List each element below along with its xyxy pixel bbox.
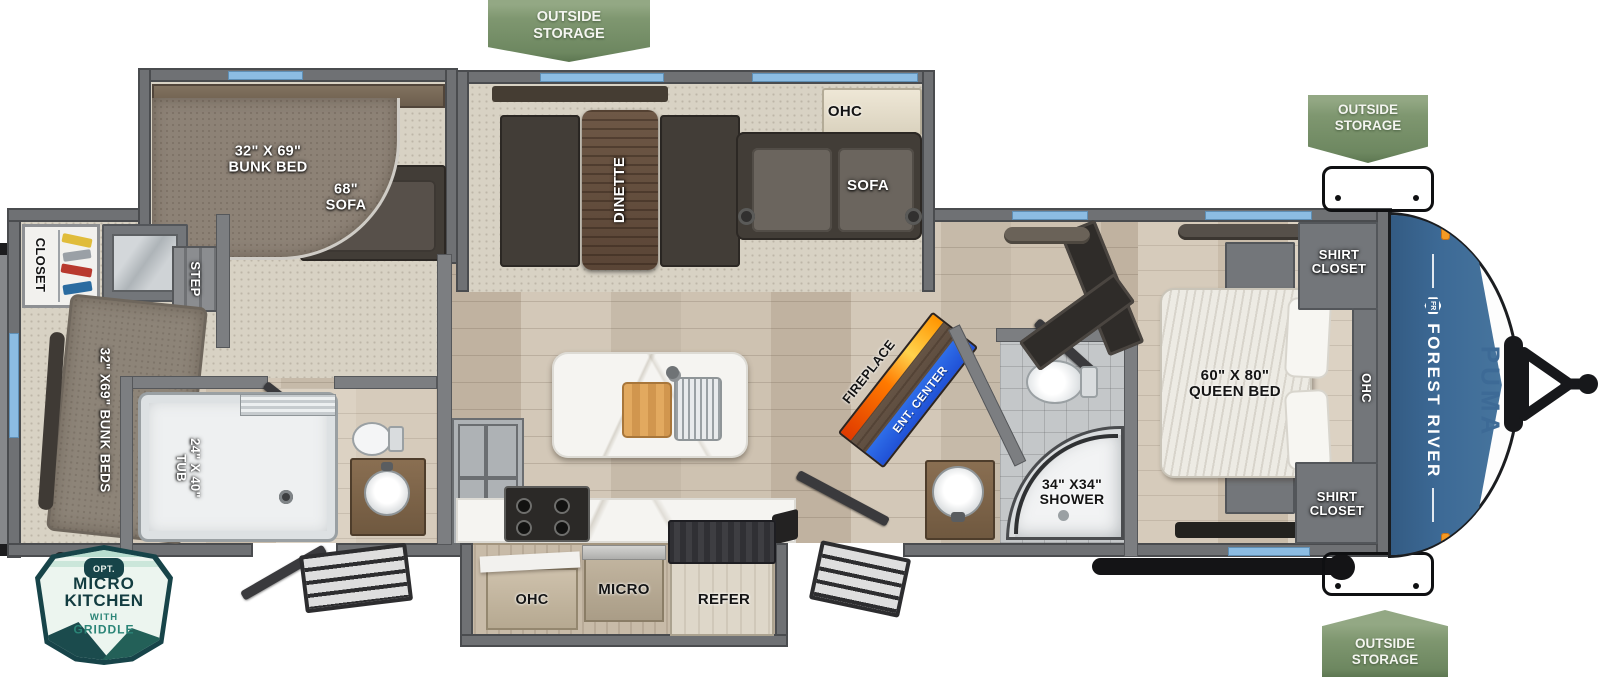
outside-storage-label: OUTSIDE STORAGE — [1335, 102, 1402, 134]
tub-drain — [279, 490, 293, 504]
entry-steps-1 — [299, 543, 413, 614]
dinette-window-1 — [540, 73, 664, 82]
forest-river-wordmark: FR FOREST RIVER — [1418, 248, 1448, 528]
bath1-toilet-bowl — [1026, 360, 1084, 404]
micro-kitchen-label-2: KITCHEN — [64, 592, 143, 610]
shirt-closet-bottom-label: SHIRT CLOSET — [1310, 490, 1365, 518]
step-label: STEP — [188, 261, 202, 296]
dinette-window-2 — [752, 73, 918, 82]
bath2-wall-top-a — [120, 376, 268, 389]
micro-kitchen-badge: OPT. MICRO KITCHEN WITH GRIDDLE — [35, 545, 173, 665]
micro-kitchen-sub-2: GRIDDLE — [74, 624, 135, 637]
outside-storage-badge-right: OUTSIDE STORAGE — [1308, 95, 1428, 163]
bolt-icon — [1413, 195, 1419, 201]
dinette-slide-wall-left — [456, 70, 469, 292]
wall-bunkroom-divider — [437, 254, 452, 545]
rear-window — [9, 333, 19, 438]
kitchen-ohc-label: OHC — [515, 593, 548, 609]
marker-light-icon — [1441, 533, 1450, 548]
sofa-ohc-label: OHC — [828, 104, 862, 120]
bath1-wall-right — [1124, 328, 1138, 557]
bedroom-dresser-top — [1225, 242, 1295, 294]
burner-icon — [516, 498, 532, 514]
shirt-closet-top-label: SHIRT CLOSET — [1312, 248, 1367, 276]
outside-storage-badge-top: OUTSIDE STORAGE — [488, 0, 650, 62]
sofa-cushion-left — [752, 148, 832, 232]
bedroom-window-top — [1205, 211, 1312, 220]
dinette-bench-right — [660, 115, 740, 267]
outside-storage-label: OUTSIDE STORAGE — [533, 9, 604, 43]
hall-bolster — [1004, 227, 1090, 244]
kitchen-slide-wall-right — [775, 543, 788, 647]
queen-bed-pillow-2 — [1284, 389, 1332, 471]
island-cutting-board — [622, 382, 672, 438]
frame-bracket-top — [1322, 166, 1434, 212]
dinette-valance — [492, 86, 668, 102]
bath2-toilet-tank — [388, 426, 404, 452]
awning-rail — [1092, 558, 1354, 575]
hitch-tongue — [1500, 328, 1600, 440]
wall-top-right — [930, 208, 1392, 222]
bath2-faucet — [381, 462, 393, 471]
pinstripe — [1432, 488, 1434, 522]
refer-label: REFER — [698, 592, 750, 608]
frame-bracket-bottom — [1322, 552, 1434, 596]
bath2-wall-left — [120, 376, 133, 556]
microwave-top — [582, 545, 666, 560]
bath1-faucet — [951, 512, 965, 522]
wall-top-left — [7, 208, 147, 222]
burner-icon — [554, 520, 570, 536]
micro-kitchen-badge-inner: OPT. MICRO KITCHEN WITH GRIDDLE — [40, 550, 168, 660]
bunk-slide-window — [228, 71, 303, 80]
bed-bench-bottom — [1175, 522, 1307, 538]
wall-closet-divider — [216, 214, 230, 348]
dinette-bench-left — [500, 115, 580, 267]
burner-icon — [516, 520, 532, 536]
sofa-cupholder-right — [905, 208, 922, 225]
kitchen-slide-wall-left — [460, 543, 473, 647]
bolt-icon — [1335, 195, 1341, 201]
wall-bottom-3 — [903, 543, 1392, 557]
entry-steps-2 — [809, 540, 911, 618]
forest-river-logo-icon: FR — [1425, 297, 1442, 314]
bolt-icon — [1413, 583, 1419, 589]
kitchen-stove — [504, 486, 590, 542]
hall-window — [1012, 211, 1088, 220]
island-sink — [674, 377, 722, 441]
refrigerator-top — [668, 520, 776, 564]
tub-label: 24" X 40" TUB — [174, 438, 202, 498]
rear-dresser-mirror — [112, 234, 178, 292]
queen-bed-label: 60" X 80" QUEEN BED — [1189, 368, 1281, 400]
shower-drain — [1058, 510, 1069, 521]
shower-label: 34" X34" SHOWER — [1040, 477, 1105, 507]
closet-label: CLOSET — [33, 238, 47, 293]
outside-storage-label: OUTSIDE STORAGE — [1352, 636, 1419, 668]
burner-icon — [554, 498, 570, 514]
opt-label: OPT. — [93, 564, 115, 574]
micro-label: MICRO — [598, 582, 650, 598]
bedroom-window-bottom — [1228, 547, 1310, 556]
forest-river-text: FOREST RIVER — [1423, 323, 1443, 479]
rear-bunks-label: 32" X69" BUNK BEDS — [97, 348, 112, 493]
marker-light-icon — [1441, 225, 1450, 240]
sofa-68-label: 68" SOFA — [326, 182, 367, 213]
outside-storage-badge-bottom: OUTSIDE STORAGE — [1322, 610, 1448, 677]
closet-rod — [58, 230, 60, 302]
dinette-label: DINETTE — [612, 157, 628, 223]
sofa-cupholder-left — [738, 208, 755, 225]
bath1-sink — [932, 466, 984, 518]
island-faucet — [666, 366, 679, 379]
rv-floorplan: 32" X 69" BUNK BED 68" SOFA DINETTE OHC … — [0, 0, 1600, 677]
bolt-icon — [1335, 583, 1341, 589]
bath2-wall-top-b — [334, 376, 437, 389]
bedroom-ohc-label: OHC — [1359, 373, 1373, 403]
sofa-label: SOFA — [847, 178, 889, 194]
tub-glass-door — [240, 394, 336, 416]
bath1-toilet-tank — [1080, 366, 1098, 398]
bunk-bed-label: 32" X 69" BUNK BED — [229, 144, 308, 175]
bath2-sink — [364, 470, 410, 516]
bed-valance-top — [1178, 224, 1310, 240]
pinstripe — [1432, 254, 1434, 288]
dinette-slide-wall-right — [922, 70, 935, 292]
bath2-toilet-bowl — [352, 422, 392, 456]
